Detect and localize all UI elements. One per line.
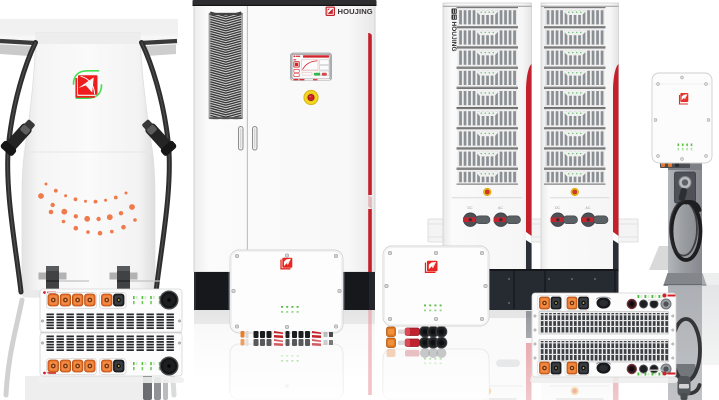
svg-text:AC: AC [498,206,503,210]
svg-text:AC: AC [586,206,591,210]
svg-text:HOUJING: HOUJING [450,22,457,52]
svg-text:DC: DC [555,206,561,210]
svg-text:DC: DC [468,206,474,210]
svg-text:HOUJING: HOUJING [338,7,373,16]
